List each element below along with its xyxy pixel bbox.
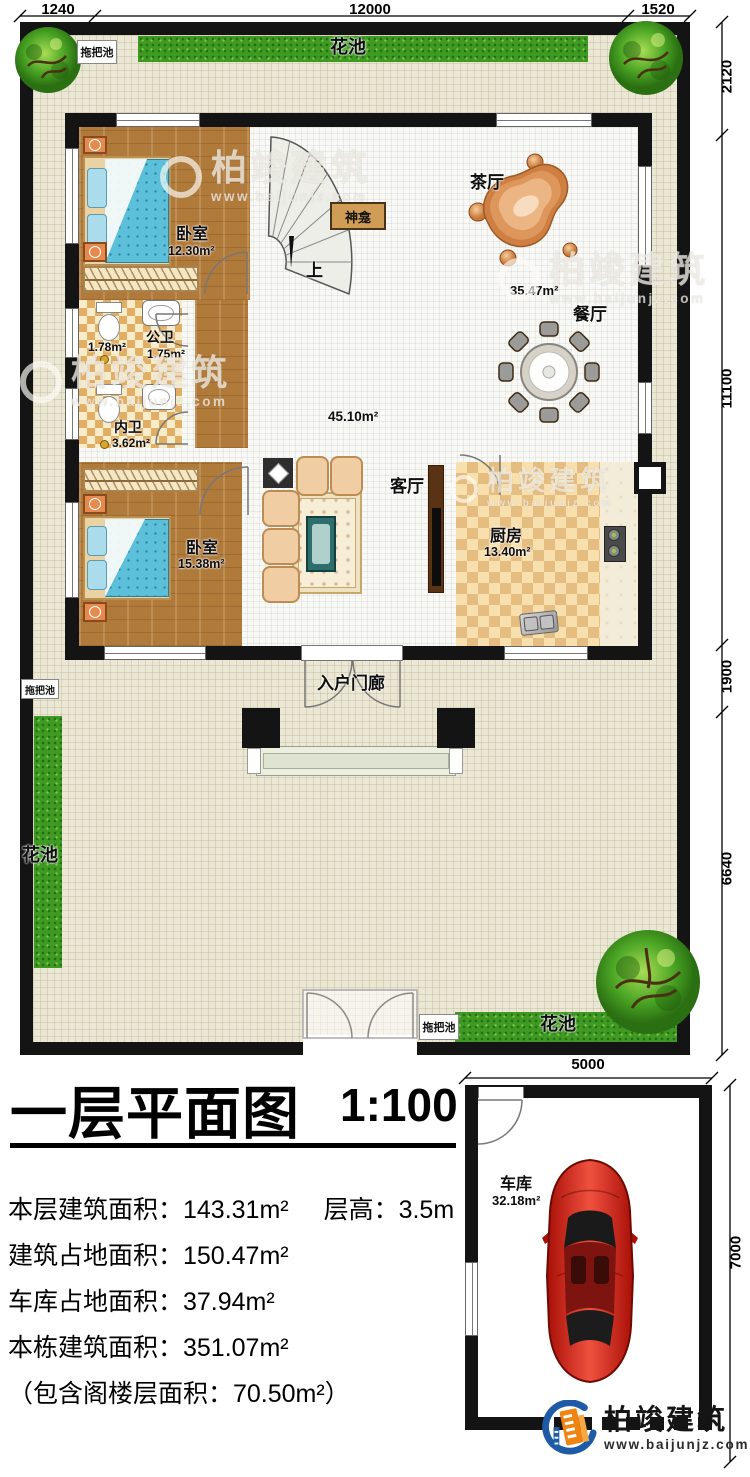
floor-plan-page: 1240 12000 1520 2120 11100 1900 6640 500… xyxy=(0,0,750,1477)
nightstand xyxy=(83,602,107,622)
garage-outline xyxy=(465,1085,712,1430)
garage-window xyxy=(465,1262,478,1336)
title-underline xyxy=(10,1143,456,1148)
wardrobe-bedroom1 xyxy=(83,266,199,292)
porch-column xyxy=(242,708,280,748)
toilet-public-bath xyxy=(96,302,126,344)
sofa-cushion xyxy=(262,566,300,603)
corridor-floor xyxy=(195,300,248,448)
porch-post xyxy=(449,748,463,774)
nightstand xyxy=(83,136,107,154)
stat-line-3: 车库占地面积：37.94m² xyxy=(8,1282,275,1318)
inner-bath-label: 内卫 xyxy=(114,420,142,435)
window xyxy=(638,166,652,266)
nightstand xyxy=(83,494,107,514)
window xyxy=(504,646,588,660)
burner xyxy=(608,545,620,557)
kitchen-area: 13.40m² xyxy=(484,546,531,560)
dim-label-1520: 1520 xyxy=(620,1,696,18)
dim-label-1900: 1900 xyxy=(719,642,736,712)
stat-floor-height: 层高：3.5m xyxy=(324,1196,455,1224)
window xyxy=(116,113,200,127)
sofa-cushion xyxy=(330,456,363,496)
dim-label-5000: 5000 xyxy=(550,1056,626,1073)
bed-bedroom2 xyxy=(83,516,171,600)
wall-niche xyxy=(634,462,666,494)
coffee-table xyxy=(306,516,336,572)
mop-pool-bottom: 拖把池 xyxy=(419,1014,459,1040)
window xyxy=(638,382,652,434)
dining-label: 餐厅 xyxy=(573,306,607,325)
brand-logo: 柏竣建筑 www.baijunjz.com xyxy=(540,1400,749,1458)
flower-bed-top-label: 花池 xyxy=(330,38,366,58)
window xyxy=(104,646,206,660)
pillow xyxy=(87,168,107,208)
brand-logo-text: 柏竣建筑 www.baijunjz.com xyxy=(604,1406,749,1452)
stat-floor-area: 本层建筑面积：143.31m² xyxy=(8,1196,289,1224)
stat-line-2: 建筑占地面积：150.47m² xyxy=(8,1236,289,1272)
stat-line-1: 本层建筑面积：143.31m² 层高：3.5m xyxy=(8,1190,454,1226)
dining-area: 35.47m² xyxy=(510,284,558,298)
stat-line-4: 本栋建筑面积：351.07m² xyxy=(8,1328,289,1364)
shrine-label: 神龛 xyxy=(345,207,371,226)
flower-bed-bottom-label: 花池 xyxy=(540,1015,576,1035)
dim-label-1240: 1240 xyxy=(20,1,96,18)
inner-bath-area: 3.62m² xyxy=(112,437,150,450)
public-bath-area: 1.75m² xyxy=(147,348,185,361)
dim-label-12000: 12000 xyxy=(320,1,420,18)
porch-column xyxy=(437,708,475,748)
mop-pool-left: 拖把池 xyxy=(21,679,59,699)
tea-room-label: 茶厅 xyxy=(470,174,504,193)
sink-public-bath xyxy=(142,300,180,326)
nightstand xyxy=(83,242,107,262)
pillow xyxy=(87,526,107,556)
wardrobe-bedroom2 xyxy=(83,468,199,492)
plan-title: 一层平面图 xyxy=(10,1068,300,1150)
stat-line-5: （包含阁楼层面积：70.50m²） xyxy=(8,1374,350,1410)
stove xyxy=(604,526,626,562)
window xyxy=(496,113,592,127)
stairs-up-label: 上 xyxy=(306,262,323,281)
brand-logo-icon xyxy=(540,1400,598,1458)
sofa-cushion xyxy=(262,528,300,565)
public-bath-label: 公卫 xyxy=(146,330,174,345)
burner xyxy=(608,529,620,541)
window xyxy=(65,308,79,358)
porch-post xyxy=(247,748,261,774)
brand-url: www.baijunjz.com xyxy=(604,1437,749,1452)
window xyxy=(65,502,79,598)
living-area: 45.10m² xyxy=(328,410,378,425)
entry-door-frame xyxy=(301,645,403,661)
dim-label-7000: 7000 xyxy=(728,1218,745,1288)
brand-name: 柏竣建筑 xyxy=(604,1406,749,1434)
sink-inner-bath xyxy=(142,384,176,410)
dim-label-6640: 6640 xyxy=(719,834,736,904)
bedroom1-area: 12.30m² xyxy=(168,245,215,259)
shrine-cabinet: 神龛 xyxy=(330,202,386,230)
bedroom1-label: 卧室 xyxy=(176,226,208,244)
plan-scale: 1:100 xyxy=(340,1078,458,1132)
garage-label: 车库 xyxy=(500,1176,532,1194)
porch-label: 入户门廊 xyxy=(317,675,385,694)
gate-opening xyxy=(303,1035,417,1055)
window xyxy=(65,388,79,440)
mop-pool-top: 拖把池 xyxy=(77,40,117,64)
floor-drain xyxy=(100,355,109,364)
sofa-cushion xyxy=(296,456,329,496)
porch-step xyxy=(256,746,456,776)
flower-bed-left xyxy=(34,716,62,968)
tv xyxy=(432,508,441,586)
bedroom2-area: 15.38m² xyxy=(178,558,225,572)
sofa-cushion xyxy=(262,490,300,527)
bedroom2-label: 卧室 xyxy=(186,540,218,558)
dim-label-2120: 2120 xyxy=(719,42,736,112)
flower-bed-left-label: 花池 xyxy=(22,846,58,866)
pillow xyxy=(87,560,107,590)
floor-drain xyxy=(100,440,109,449)
kitchen-sink xyxy=(519,610,559,636)
corner-lamp-table xyxy=(263,458,293,488)
window xyxy=(65,148,79,244)
garage-door-opening xyxy=(478,1087,524,1098)
garage-area: 32.18m² xyxy=(492,1194,540,1208)
living-label: 客厅 xyxy=(390,478,424,497)
kitchen-label: 厨房 xyxy=(490,528,522,546)
bath-small-area: 1.78m² xyxy=(88,341,126,354)
dim-label-11100: 11100 xyxy=(719,354,736,424)
